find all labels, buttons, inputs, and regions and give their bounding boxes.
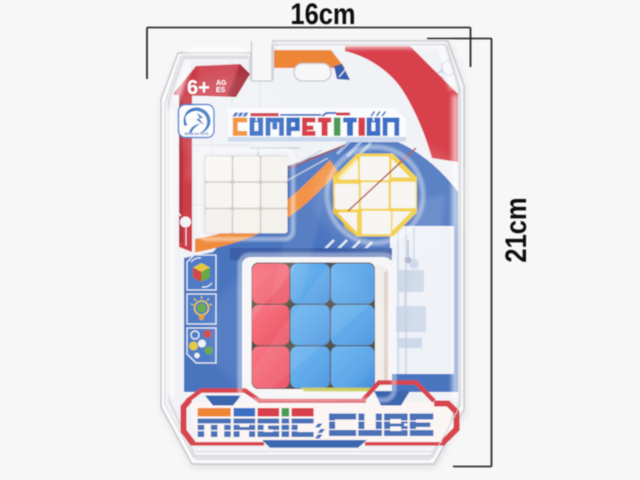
svg-text:21cm: 21cm (499, 197, 532, 262)
svg-text:16cm: 16cm (290, 0, 355, 30)
